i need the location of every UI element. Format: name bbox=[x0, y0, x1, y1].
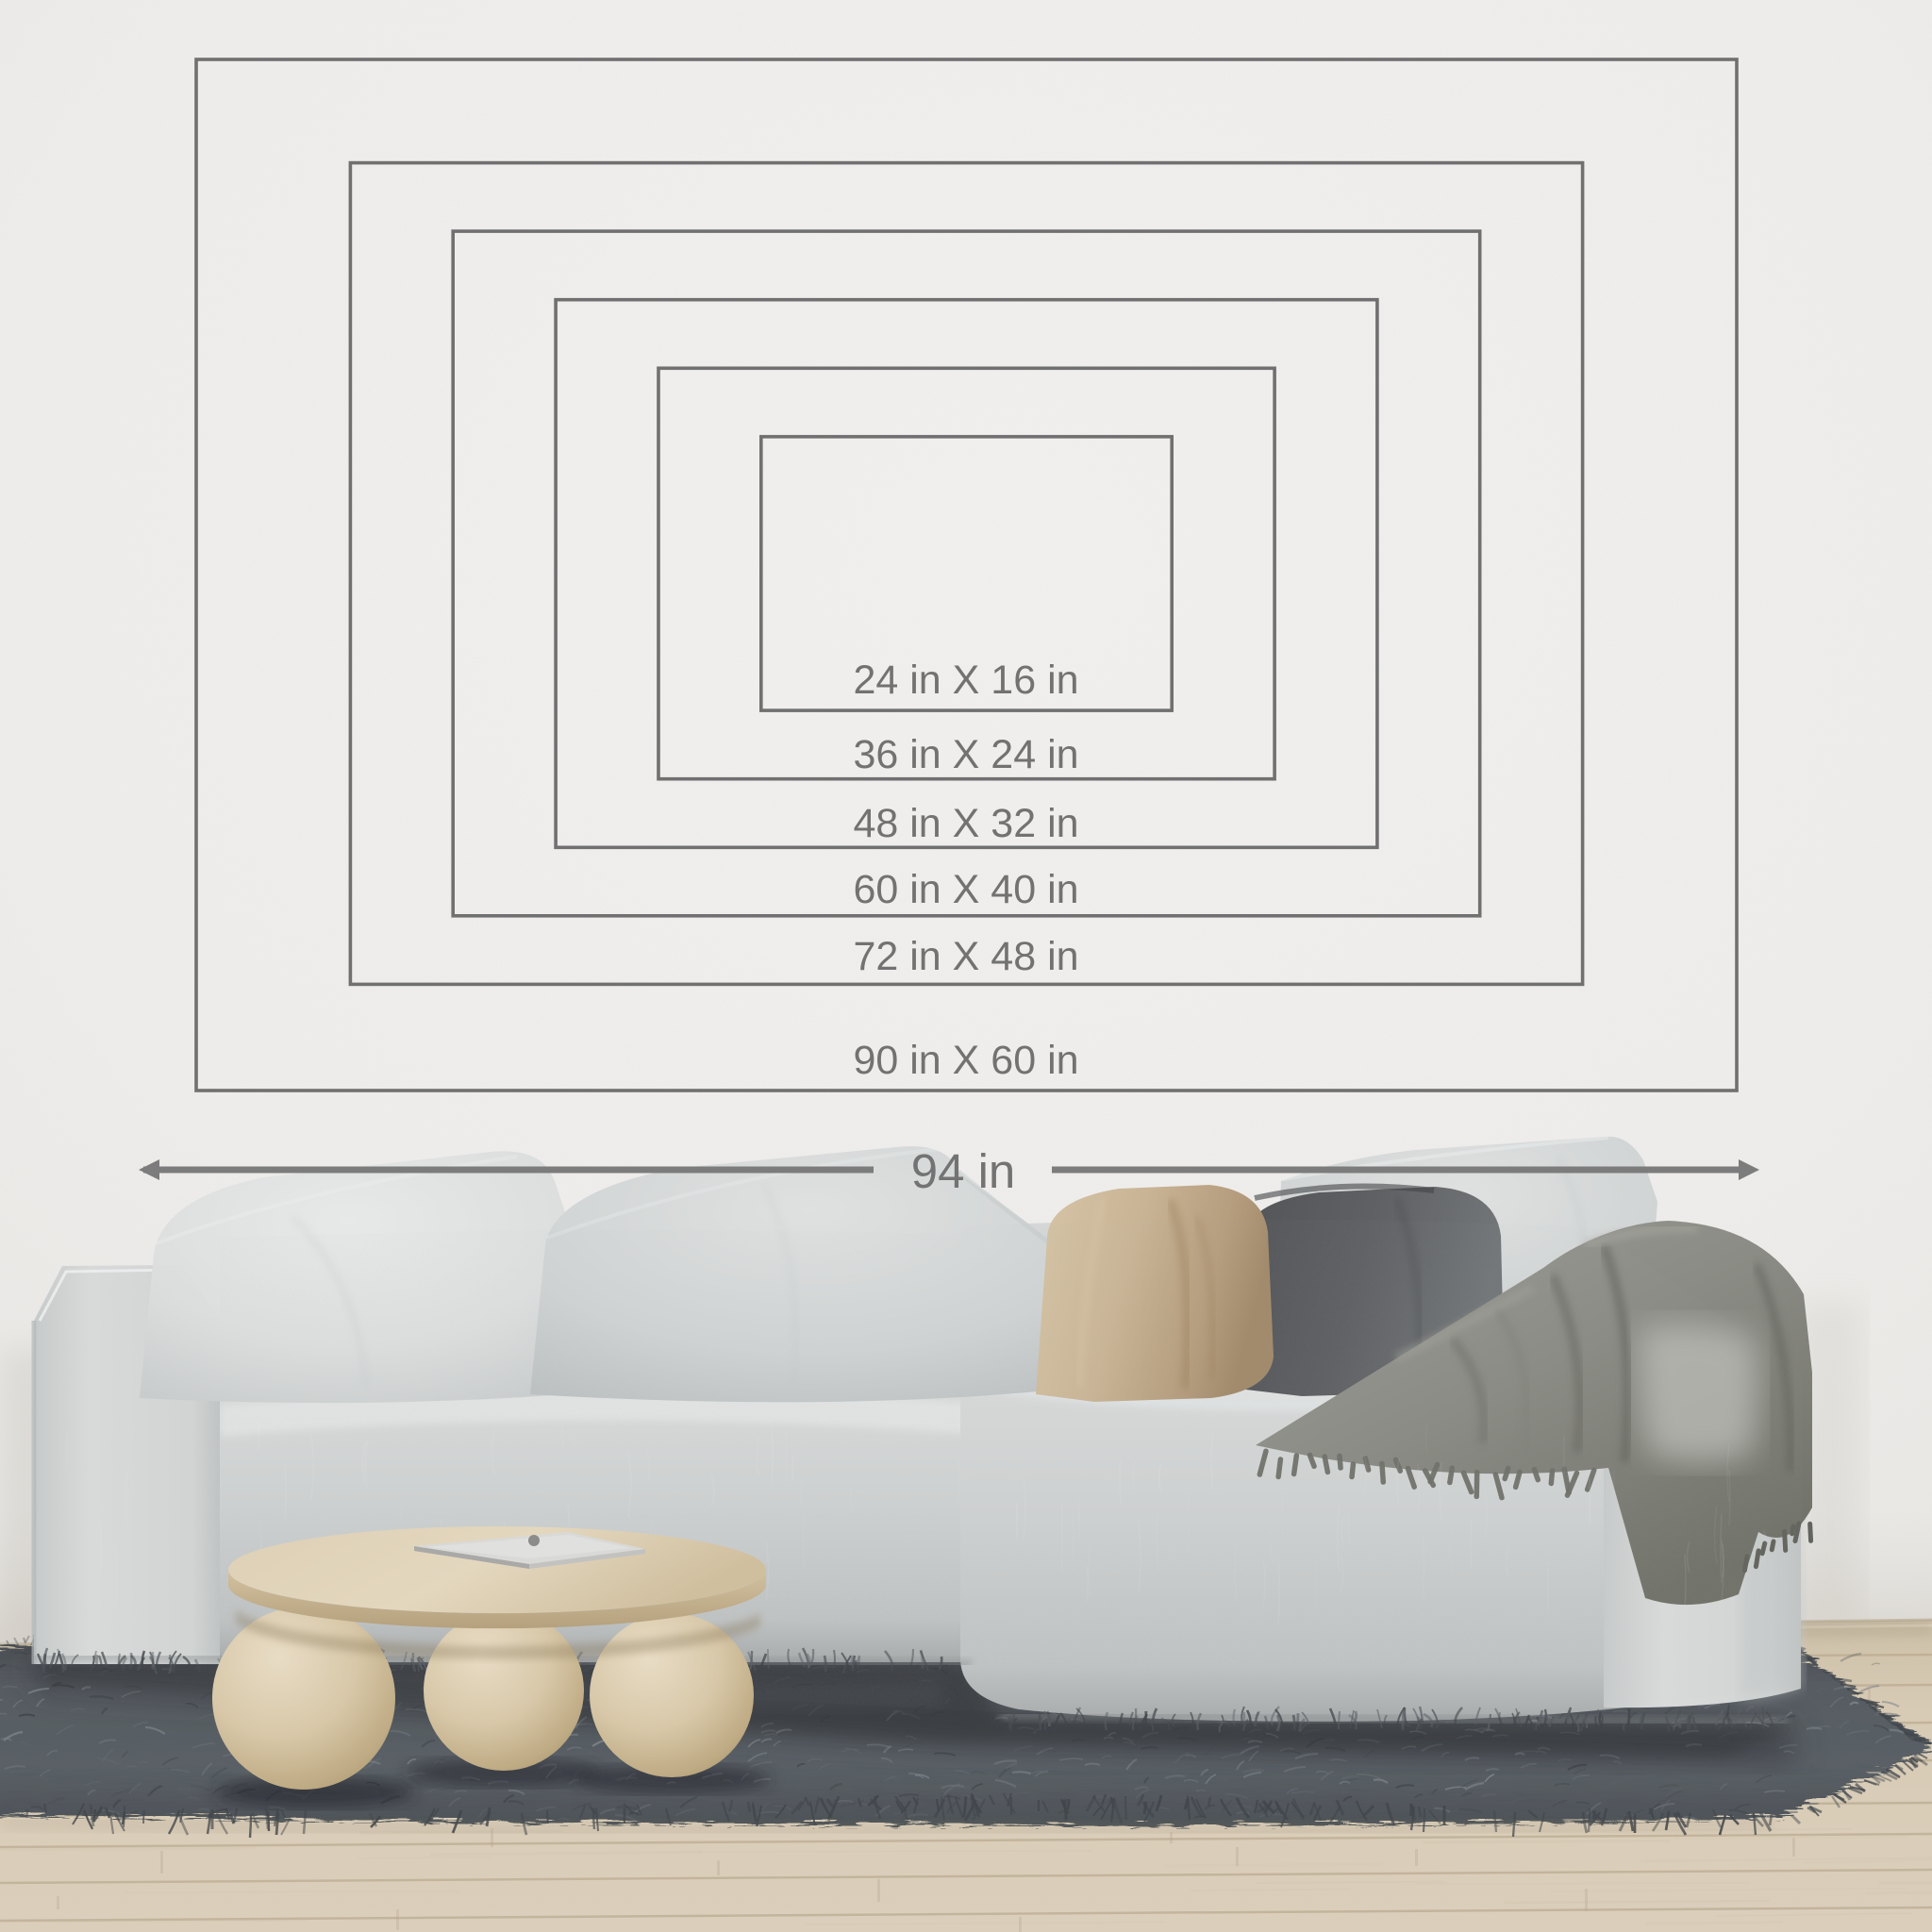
svg-text:24 in X 16 in: 24 in X 16 in bbox=[853, 658, 1078, 703]
svg-text:72 in X 48 in: 72 in X 48 in bbox=[853, 934, 1078, 979]
svg-text:48 in X 32 in: 48 in X 32 in bbox=[853, 801, 1078, 846]
svg-text:60 in X 40 in: 60 in X 40 in bbox=[853, 867, 1078, 912]
svg-text:36 in X 24 in: 36 in X 24 in bbox=[853, 732, 1078, 777]
svg-text:90 in X 60 in: 90 in X 60 in bbox=[853, 1038, 1078, 1083]
svg-text:94 in: 94 in bbox=[911, 1144, 1016, 1198]
